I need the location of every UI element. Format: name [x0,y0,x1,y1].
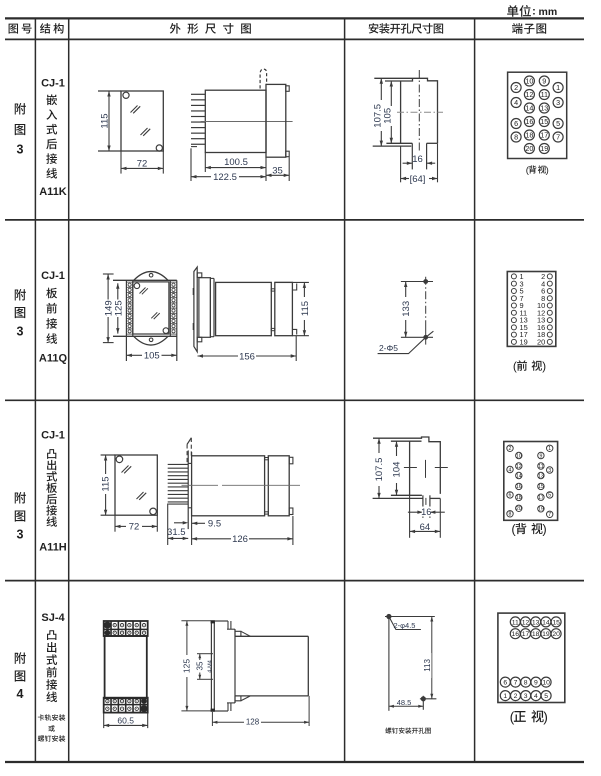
svg-text:16: 16 [421,507,431,517]
svg-text:): ) [542,359,546,373]
svg-text:3: 3 [556,98,560,107]
svg-text:11: 11 [538,464,543,470]
svg-text:1: 1 [548,446,551,452]
svg-text:48.5: 48.5 [397,698,412,707]
svg-text:A11H: A11H [39,542,67,554]
svg-text:100.5: 100.5 [224,157,248,168]
svg-text:18: 18 [532,631,540,638]
svg-text:133: 133 [401,301,412,317]
svg-text:6: 6 [509,493,512,499]
svg-text:20: 20 [552,631,560,638]
svg-text:14: 14 [542,619,550,626]
svg-text:12: 12 [522,619,530,626]
svg-text:A11Q: A11Q [39,352,68,364]
svg-text:8: 8 [524,680,528,687]
svg-text:2-Φ5: 2-Φ5 [379,343,398,353]
svg-text:126: 126 [232,534,248,545]
svg-text:17: 17 [522,631,530,638]
svg-text:): ) [546,165,549,176]
svg-text:115: 115 [101,476,112,491]
svg-text:1: 1 [503,693,507,700]
svg-text:72: 72 [137,158,148,169]
svg-text:122.5: 122.5 [213,172,237,183]
svg-text:CJ-1: CJ-1 [41,429,65,441]
svg-text:3: 3 [524,693,528,700]
svg-text:16: 16 [516,484,522,490]
svg-text:6: 6 [514,119,518,128]
svg-text:13: 13 [540,104,548,113]
svg-text:4: 4 [534,693,538,700]
svg-text:107.5: 107.5 [374,458,385,482]
svg-text:2: 2 [514,83,518,92]
svg-text:5: 5 [556,119,560,128]
svg-text:15: 15 [538,484,544,490]
svg-text:10: 10 [525,77,533,86]
svg-text:12: 12 [516,464,522,470]
svg-text:3: 3 [17,324,24,338]
svg-text:20: 20 [537,338,545,347]
svg-text:11: 11 [541,90,548,99]
svg-text:9: 9 [534,680,538,687]
svg-text:): ) [542,522,546,537]
svg-text:4-M4: 4-M4 [208,660,214,673]
svg-text:113: 113 [423,658,432,671]
svg-text:14: 14 [516,473,522,479]
svg-text:72: 72 [129,522,140,533]
svg-text:105: 105 [144,351,160,362]
svg-text:7: 7 [514,680,518,687]
svg-text:19: 19 [520,338,528,347]
svg-text:64: 64 [420,522,431,533]
svg-text:1: 1 [556,83,560,92]
svg-text:16: 16 [412,154,423,165]
svg-text:9: 9 [542,77,546,86]
svg-text:105: 105 [383,108,394,124]
svg-text:CJ-1: CJ-1 [41,270,65,282]
svg-text:[64]: [64] [410,174,426,185]
svg-text:18: 18 [525,131,533,140]
svg-text:156: 156 [239,351,255,362]
svg-text:31.5: 31.5 [167,527,186,538]
svg-text:14: 14 [525,104,533,113]
svg-text:10: 10 [542,680,550,687]
svg-text:115: 115 [100,113,111,128]
svg-text:9.5: 9.5 [208,519,221,530]
svg-text:12: 12 [525,90,533,99]
svg-text:): ) [543,709,548,725]
svg-text:13: 13 [532,619,540,626]
svg-text::: : [532,6,536,18]
svg-text:6: 6 [503,680,507,687]
svg-text:4: 4 [509,467,512,473]
svg-text:16: 16 [512,631,520,638]
svg-text:3: 3 [17,527,24,541]
svg-text:3: 3 [548,468,551,474]
svg-text:115: 115 [300,301,311,316]
svg-text:(: ( [511,522,516,537]
svg-text:17: 17 [540,131,548,140]
svg-text:SJ-4: SJ-4 [41,612,65,624]
svg-text:128: 128 [246,718,260,727]
svg-text:16: 16 [525,117,533,126]
svg-text:4: 4 [514,98,518,107]
svg-text:15: 15 [552,619,560,626]
svg-text:2: 2 [514,693,518,700]
svg-text:(: ( [510,709,515,725]
svg-text:20: 20 [525,144,533,153]
svg-text:8: 8 [509,512,512,518]
svg-text:11: 11 [512,619,519,626]
svg-text:104: 104 [392,462,403,478]
svg-text:20: 20 [516,506,522,512]
svg-text:10: 10 [516,453,522,459]
svg-text:125: 125 [182,659,192,673]
svg-text:60.5: 60.5 [117,715,134,725]
svg-text:4: 4 [17,687,24,701]
svg-text:35: 35 [272,166,283,177]
svg-text:18: 18 [516,495,522,501]
svg-text:35: 35 [195,661,204,670]
svg-text:19: 19 [538,507,544,513]
svg-text:5: 5 [548,493,551,499]
svg-text:5: 5 [544,693,548,700]
svg-text:9: 9 [539,453,542,459]
svg-text:CJ-1: CJ-1 [41,77,65,89]
svg-text:13: 13 [538,473,544,479]
svg-text:3: 3 [17,142,24,156]
svg-text:7: 7 [548,512,551,518]
svg-text:19: 19 [540,144,548,153]
svg-text:8: 8 [514,133,518,142]
svg-text:2: 2 [509,446,512,452]
svg-text:19: 19 [542,631,550,638]
svg-text:7: 7 [556,133,560,142]
svg-text:(: ( [513,359,517,373]
svg-text:mm: mm [539,6,558,18]
svg-text:2-φ4.5: 2-φ4.5 [394,621,416,630]
svg-text:A11K: A11K [39,186,67,198]
svg-text:125: 125 [113,300,124,316]
svg-text:17: 17 [538,495,544,501]
svg-text:15: 15 [540,117,548,126]
